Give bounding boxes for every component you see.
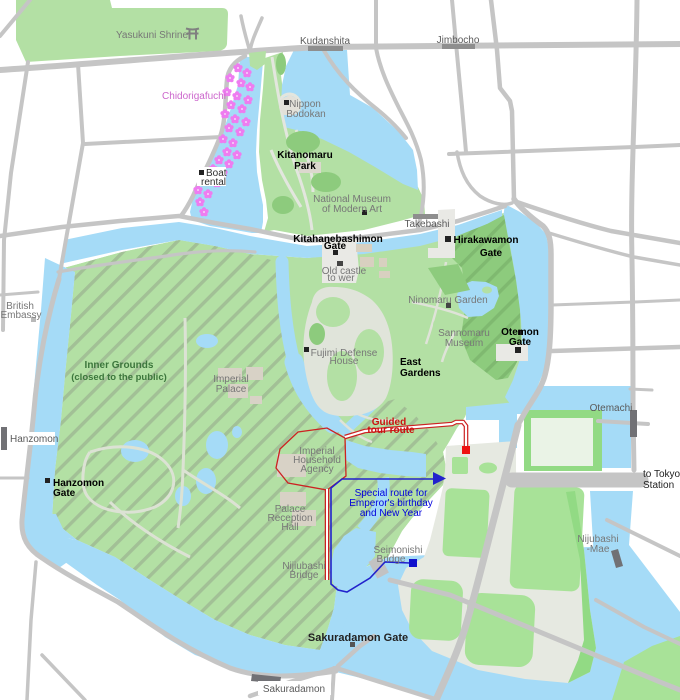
svg-text:East: East [400,357,422,368]
svg-text:Gate: Gate [53,488,76,499]
svg-text:Hanzomon: Hanzomon [10,434,58,445]
svg-text:Sakuradamon Gate: Sakuradamon Gate [308,632,408,644]
svg-text:Bodokan: Bodokan [286,109,325,120]
svg-text:Inner Grounds: Inner Grounds [85,360,154,371]
svg-text:Gate: Gate [480,248,503,259]
svg-text:Palace: Palace [216,384,247,395]
svg-text:Sakuradamon: Sakuradamon [263,684,325,695]
svg-text:Gate: Gate [509,337,532,348]
svg-text:(closed to the public): (closed to the public) [71,372,167,383]
svg-text:Otemachi: Otemachi [590,403,633,414]
svg-text:Hall: Hall [281,522,298,533]
svg-text:Ninomaru Garden: Ninomaru Garden [408,295,487,306]
svg-text:House: House [330,356,359,367]
svg-text:Kitanomaru: Kitanomaru [277,150,333,161]
svg-text:Station: Station [643,480,674,491]
svg-text:Takebashi: Takebashi [404,219,449,230]
svg-text:Bridge: Bridge [290,570,319,581]
svg-text:Chidorigafuchi: Chidorigafuchi [162,91,226,102]
svg-text:Hirakawamon: Hirakawamon [453,235,518,246]
svg-text:Museum: Museum [445,338,483,349]
svg-text:Park: Park [294,161,316,172]
svg-text:Embassy: Embassy [0,310,41,321]
svg-text:rental: rental [201,177,226,188]
svg-text:and New Year: and New Year [360,508,423,519]
svg-text:to wer: to wer [327,273,355,284]
svg-text:Jimbocho: Jimbocho [437,35,480,46]
svg-text:Gate: Gate [324,241,347,252]
svg-text:Yasukuni Shrine: Yasukuni Shrine [116,30,189,41]
svg-text:Kudanshita: Kudanshita [300,36,350,47]
svg-text:Bridge: Bridge [377,554,406,565]
svg-text:Agency: Agency [300,464,333,475]
svg-text:tour route: tour route [367,425,415,436]
svg-text:of Modern Art: of Modern Art [322,204,382,215]
svg-text:-Mae: -Mae [587,544,610,555]
svg-text:to Tokyo: to Tokyo [643,469,680,480]
svg-text:Gardens: Gardens [400,368,441,379]
